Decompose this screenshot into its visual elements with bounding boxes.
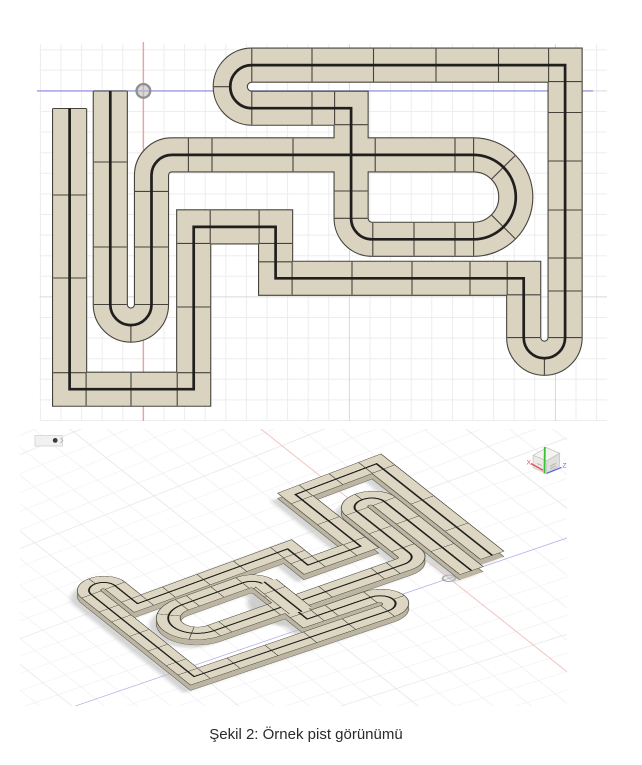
svg-text:Z: Z bbox=[563, 463, 567, 470]
svg-text:X: X bbox=[527, 460, 532, 467]
